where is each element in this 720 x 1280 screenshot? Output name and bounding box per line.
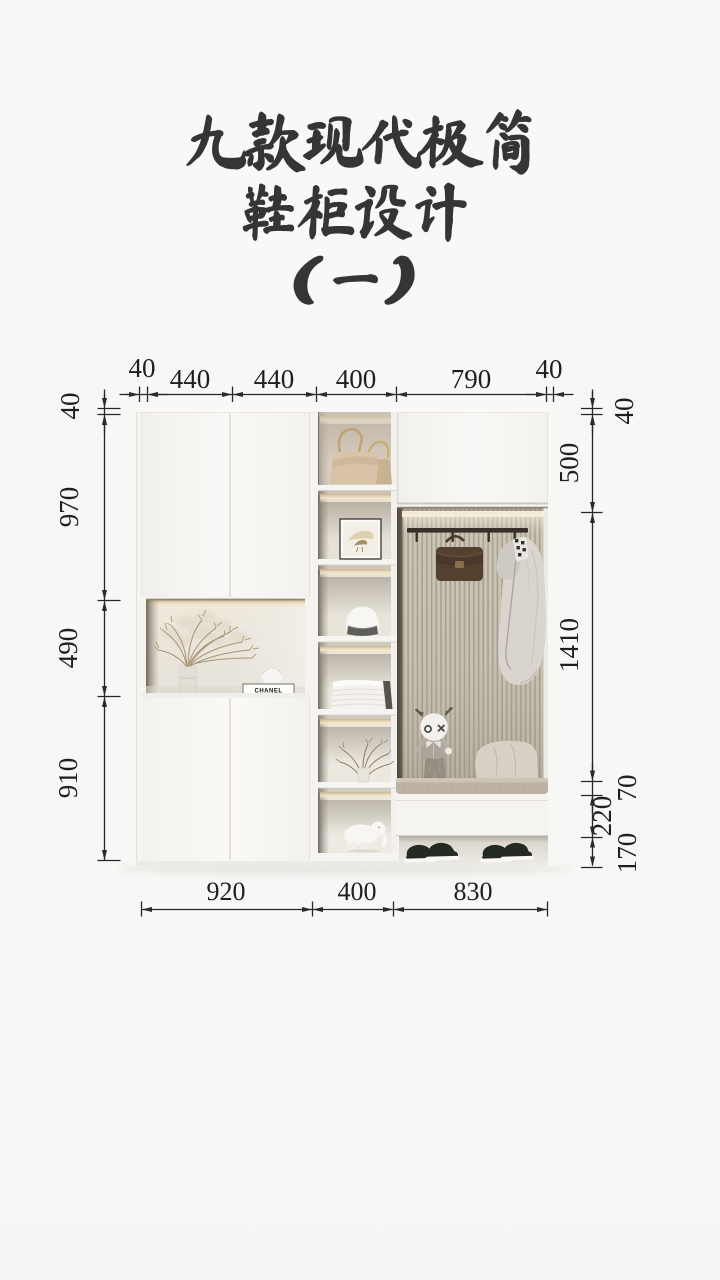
svg-text:40: 40: [536, 354, 563, 384]
svg-text:170: 170: [612, 833, 642, 874]
svg-text:440: 440: [170, 364, 211, 394]
svg-text:830: 830: [454, 877, 493, 906]
svg-text:40: 40: [129, 353, 156, 383]
svg-text:440: 440: [254, 364, 295, 394]
svg-text:400: 400: [338, 877, 377, 906]
svg-text:40: 40: [55, 393, 85, 420]
svg-text:970: 970: [54, 487, 84, 528]
svg-text:1410: 1410: [554, 618, 584, 672]
svg-text:490: 490: [53, 628, 83, 669]
svg-text:910: 910: [53, 758, 83, 799]
svg-text:400: 400: [336, 364, 377, 394]
svg-text:500: 500: [554, 443, 584, 484]
svg-text:220: 220: [587, 796, 617, 837]
svg-text:40: 40: [609, 398, 639, 425]
svg-text:920: 920: [207, 877, 246, 906]
svg-text:790: 790: [451, 364, 492, 394]
